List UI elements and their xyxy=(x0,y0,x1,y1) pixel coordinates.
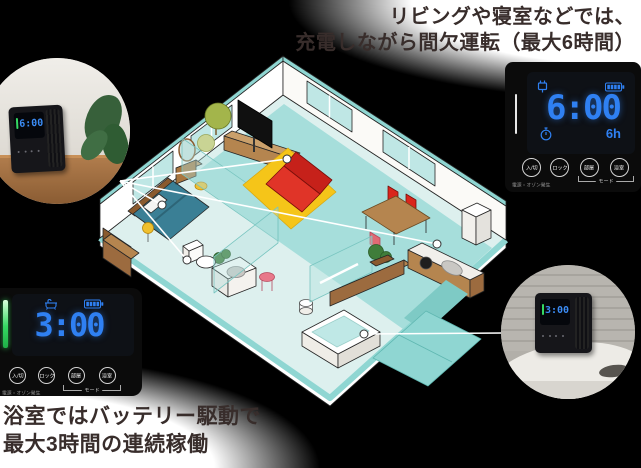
caption-living: リビングや寝室などでは、 充電しながら間欠運転（最大6時間） xyxy=(295,4,635,56)
placement-dot-bathtub xyxy=(360,330,368,338)
room-mode-button: 部屋 xyxy=(68,367,85,384)
power-button: 入/切 xyxy=(9,367,26,384)
speaker-grille xyxy=(45,109,62,168)
caption-bath: 浴室ではバッテリー駆動で 最大3時間の連続稼働 xyxy=(3,403,261,459)
led-indicator-off xyxy=(515,94,517,134)
bathtub-front xyxy=(501,381,635,399)
placement-dot-bedroom xyxy=(158,201,166,209)
photo-bathroom: 3:00 xyxy=(501,265,635,399)
room-mode-button: 部屋 xyxy=(580,158,599,177)
lock-button: ロック xyxy=(38,367,55,384)
control-panel-bath: 3:00 入/切 ロック 部屋 浴室 電源・オゾン発生 モード xyxy=(0,288,142,396)
callout-line xyxy=(120,159,287,181)
callout-line xyxy=(364,333,503,334)
lock-button: ロック xyxy=(550,158,569,177)
caption-bath-line1: 浴室ではバッテリー駆動で xyxy=(3,403,261,431)
mode-bracket: モード xyxy=(578,176,634,182)
ozone-device: 3:00 xyxy=(535,293,592,353)
caption-living-line2: 充電しながら間欠運転（最大6時間） xyxy=(295,30,635,56)
placement-dot-toilet xyxy=(183,256,191,264)
infographic-canvas: リビングや寝室などでは、 充電しながら間欠運転（最大6時間） 浴室ではバッテリー… xyxy=(0,0,641,468)
timer-display: 6:00 xyxy=(531,88,635,128)
power-caption: 電源・オゾン発生 xyxy=(512,181,550,188)
placement-dot-tv-board xyxy=(283,155,291,163)
timer-icon xyxy=(539,127,553,141)
duration-label: 6h xyxy=(606,126,621,141)
power-caption: 電源・オゾン発生 xyxy=(2,389,40,396)
control-panel-living: 6:00 6h 入/切 ロック 部屋 浴室 電源・オゾン発生 モード xyxy=(505,62,641,192)
mode-bracket: モード xyxy=(63,385,121,391)
device-led xyxy=(542,304,544,315)
device-screen: 6:00 xyxy=(14,112,45,140)
timer-display: 3:00 xyxy=(8,306,130,344)
power-button: 入/切 xyxy=(522,158,541,177)
caption-bath-line2: 最大3時間の連続稼働 xyxy=(3,431,261,459)
bath-mode-button: 浴室 xyxy=(610,158,629,177)
callout-line xyxy=(120,181,437,244)
device-screen: 3:00 xyxy=(540,299,570,325)
placement-dot-kitchen xyxy=(433,240,441,248)
caption-living-line1: リビングや寝室などでは、 xyxy=(295,4,635,30)
photo-living-room: 6:00 xyxy=(0,58,130,204)
bath-mode-button: 浴室 xyxy=(99,367,116,384)
speaker-grille xyxy=(575,297,589,349)
device-time: 3:00 xyxy=(545,305,569,316)
ozone-device: 6:00 xyxy=(8,105,65,174)
device-time: 6:00 xyxy=(19,118,44,130)
